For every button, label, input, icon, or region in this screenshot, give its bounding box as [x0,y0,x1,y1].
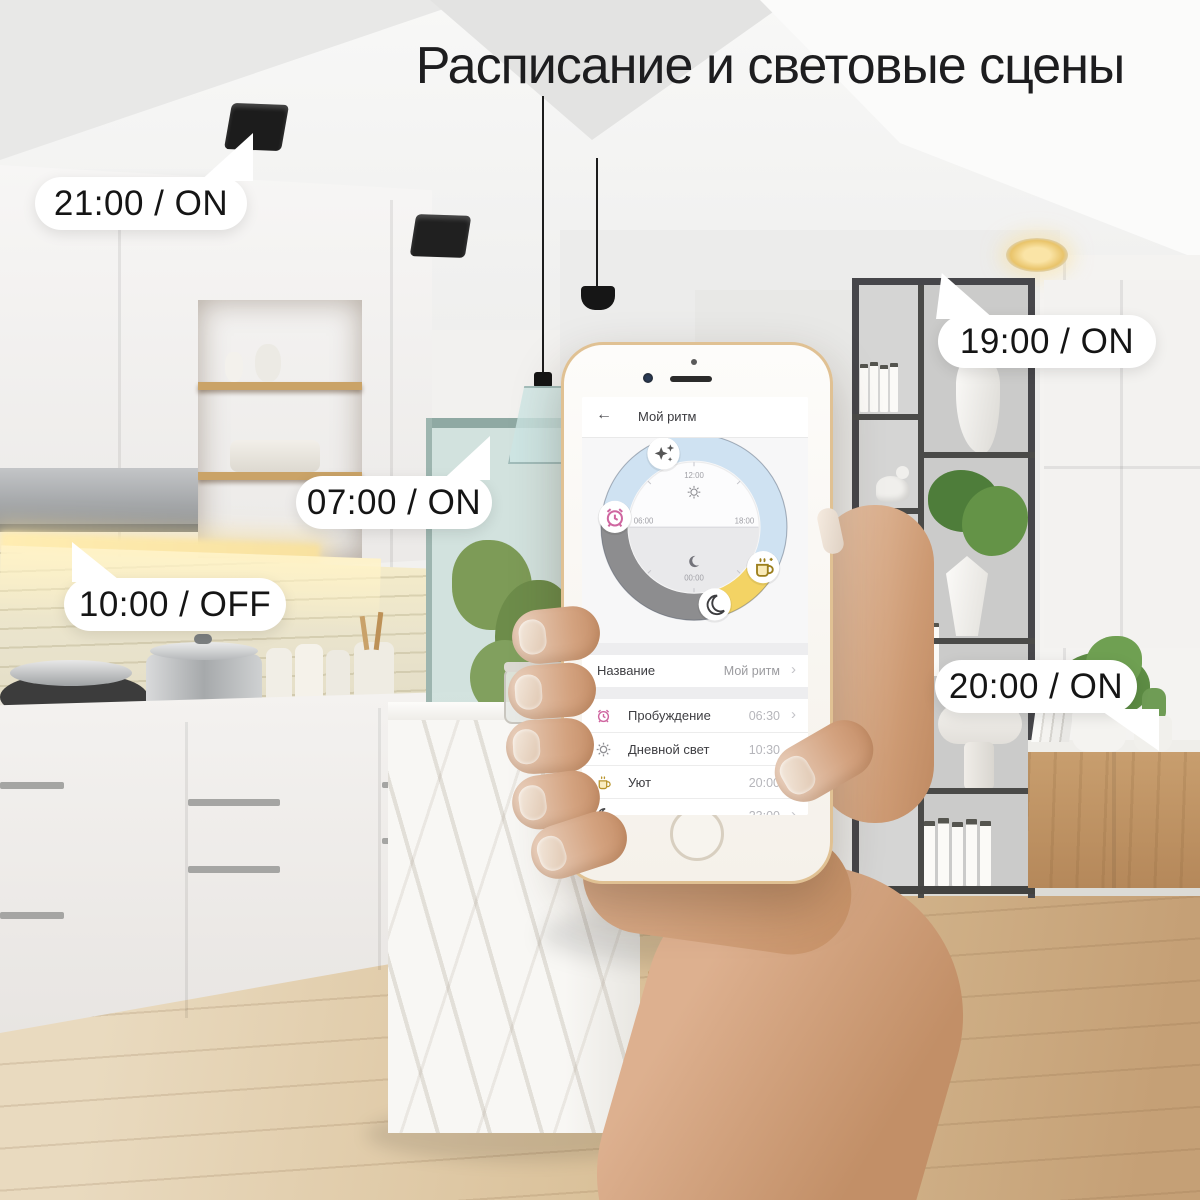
phone-earpiece [670,376,712,382]
callout-21-00-on: 21:00 / ON [35,177,247,230]
callout-10-00-off: 10:00 / OFF [64,578,286,631]
back-button[interactable]: ← [596,406,612,424]
scene-label: Дневной свет [628,742,709,757]
cabinet-seam [1044,466,1200,469]
vase [225,352,243,382]
fingernail [517,784,549,822]
dial-label-noon: 12:00 [684,471,704,480]
scene-row-wake[interactable]: Пробуждение 06:30 › [582,699,808,732]
vase [255,344,281,382]
shelf-books-top [860,362,900,412]
bird-figurine [876,476,910,502]
book-spine [870,362,878,412]
fingernail [514,674,543,711]
dishes [230,440,320,472]
dial-label-midnight: 00:00 [684,573,704,582]
drawer-handle [188,799,280,806]
book-spine [924,821,935,886]
ceiling-spotlight [410,214,472,258]
pan-lid [10,660,132,686]
recessed-light [1006,238,1068,272]
dial-label-morning: 06:00 [634,517,654,526]
book-spine [980,821,991,886]
callout-text: 19:00 / ON [960,322,1134,362]
scene: 12:00 06:00 18:00 00:00 [0,0,1200,1200]
phone-screen: 12:00 06:00 18:00 00:00 [582,397,808,815]
callout-19-00-on: 19:00 / ON [938,315,1156,368]
callout-text: 20:00 / ON [949,667,1123,707]
shelf-frame [918,452,1035,458]
app-header: ← Мой ритм [582,397,808,438]
dial-marker-cozy[interactable] [746,551,780,585]
callout-text: 21:00 / ON [54,184,228,224]
pendant-shade [581,286,615,310]
book-spine [952,822,963,886]
chevron-right-icon: › [791,706,796,723]
niche-shelf [198,382,362,390]
fingernail [512,729,541,765]
section-gap [582,643,808,655]
glass-frame [426,418,432,720]
drawer-handle [188,866,280,873]
fingernail [517,618,548,656]
book-spine [966,819,977,886]
shelf-frame [918,638,1035,644]
cabinet-seam [378,708,381,970]
sideboard-seam [1112,752,1116,888]
book-spine [860,364,868,412]
finger [505,717,596,776]
page-title: Расписание и световые сцены [370,36,1170,96]
scene-time: 23:00 [749,809,780,815]
app-title: Мой ритм [638,409,696,424]
callout-text: 07:00 / ON [307,483,481,523]
dial-marker-daylight[interactable] [646,437,680,471]
bird-figurine-head [896,466,909,479]
thumbnail [775,751,820,799]
phone-camera [643,373,653,383]
book-spine [880,365,888,412]
pendant-cord [542,96,544,388]
range-hood-underside [0,524,198,532]
section-gap [582,687,808,699]
pot-lid [150,642,258,660]
shelf-frame [852,414,924,420]
callout-07-00-on: 07:00 / ON [296,476,492,529]
name-row[interactable]: Название Мой ритм › [582,655,808,687]
scene-time: 06:30 [749,709,780,723]
alarm-icon [595,707,612,724]
fingernail [533,833,569,875]
drawer-handle [0,782,64,789]
dial-label-evening: 18:00 [735,517,755,526]
pendant-cap [534,372,552,388]
smartphone: 12:00 06:00 18:00 00:00 [561,342,833,884]
pendant-cord [596,158,598,290]
phone-sensor-dot [691,359,697,365]
callout-text: 10:00 / OFF [79,585,271,625]
dial-marker-wake[interactable] [598,501,632,535]
scene-row-daylight[interactable]: Дневной свет 10:30 › [582,732,808,766]
name-row-label: Название [597,663,655,678]
scene-row-night-clipped[interactable]: 23:00 › [582,798,808,815]
range-hood [0,468,198,530]
scene-time: 10:30 [749,743,780,757]
table-lamp-base [964,742,994,790]
sun-icon [595,741,612,758]
home-button[interactable] [670,807,724,861]
chevron-right-icon: › [791,661,796,678]
drawer-handle [0,912,64,919]
dial-marker-night[interactable] [698,588,732,622]
callout-20-00-on: 20:00 / ON [935,660,1137,713]
book-spine [938,818,949,886]
scene-label: Уют [628,775,651,790]
ceiling-spotlight [224,103,289,151]
name-row-value: Мой ритм [724,664,780,678]
pot-lid-knob [194,634,212,644]
book-spine [890,363,898,412]
finger [506,661,598,721]
chevron-right-icon: › [791,806,796,815]
scene-label: Пробуждение [628,708,711,723]
shelf-books-bottom [924,818,1000,886]
